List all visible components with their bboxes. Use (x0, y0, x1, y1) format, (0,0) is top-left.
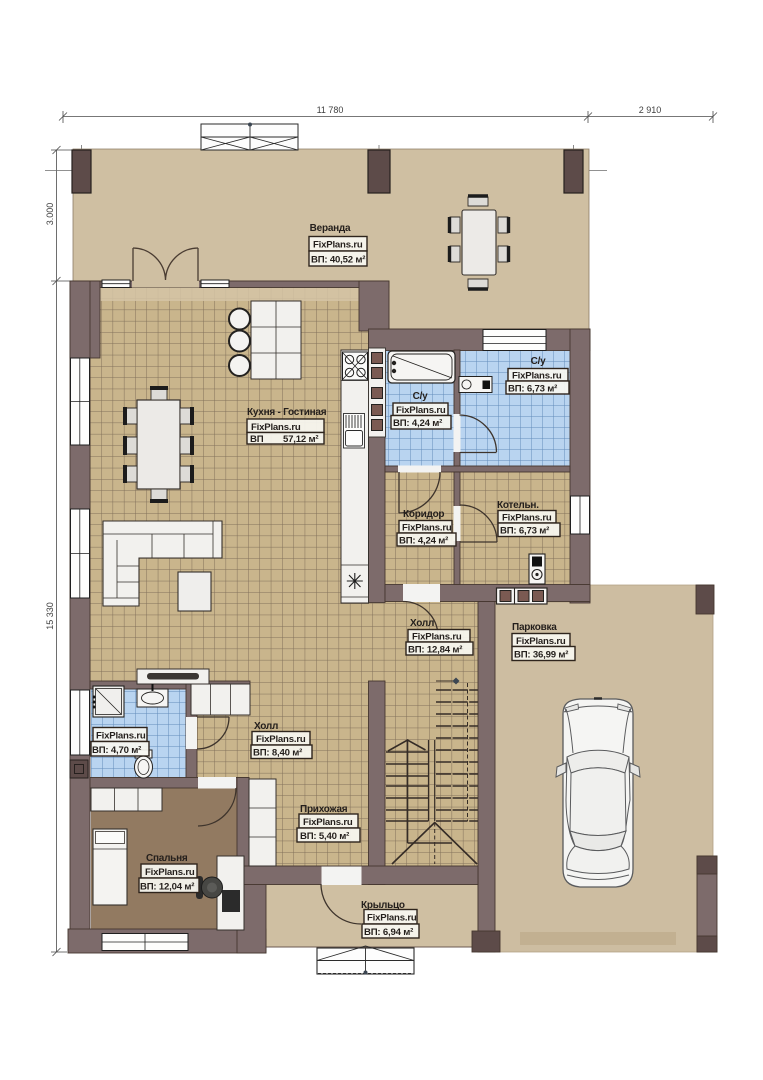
svg-text:FixPlans.ru: FixPlans.ru (96, 731, 146, 742)
svg-text:ВП: 6,94 м²: ВП: 6,94 м² (364, 927, 413, 938)
svg-text:ВП: 40,52 м²: ВП: 40,52 м² (311, 255, 365, 266)
svg-text:FixPlans.ru: FixPlans.ru (303, 817, 353, 828)
svg-text:11 780: 11 780 (317, 105, 344, 115)
svg-text:Холл: Холл (254, 721, 278, 732)
svg-text:С/у: С/у (413, 391, 429, 402)
svg-text:FixPlans.ru: FixPlans.ru (412, 632, 462, 643)
svg-text:С/у: С/у (531, 356, 547, 367)
svg-text:ВП: 4,24 м²: ВП: 4,24 м² (393, 418, 442, 429)
svg-text:ВП: 4,24 м²: ВП: 4,24 м² (399, 536, 448, 547)
svg-text:ВП: 12,84 м²: ВП: 12,84 м² (408, 645, 462, 656)
svg-text:Парковка: Парковка (512, 622, 557, 633)
svg-text:FixPlans.ru: FixPlans.ru (516, 636, 566, 647)
svg-text:ВП: 36,99 м²: ВП: 36,99 м² (514, 650, 568, 661)
svg-text:Кухня - Гостиная: Кухня - Гостиная (247, 407, 327, 418)
svg-text:ВП: ВП (250, 434, 264, 445)
svg-text:ВП: 6,73 м²: ВП: 6,73 м² (508, 384, 557, 395)
svg-text:57,12 м²: 57,12 м² (283, 434, 318, 445)
svg-text:ВП: 4,70 м²: ВП: 4,70 м² (92, 745, 141, 756)
svg-text:FixPlans.ru: FixPlans.ru (502, 513, 552, 524)
svg-text:Спальня: Спальня (146, 853, 188, 864)
svg-text:FixPlans.ru: FixPlans.ru (396, 405, 446, 416)
svg-text:Веранда: Веранда (310, 223, 351, 234)
svg-text:3.000: 3.000 (45, 203, 55, 226)
svg-text:FixPlans.ru: FixPlans.ru (367, 913, 417, 924)
svg-text:Коридор: Коридор (403, 509, 444, 520)
svg-text:ВП: 12,04 м²: ВП: 12,04 м² (140, 882, 194, 893)
svg-text:Котельн.: Котельн. (497, 500, 539, 511)
svg-text:2 910: 2 910 (639, 105, 662, 115)
svg-text:FixPlans.ru: FixPlans.ru (313, 240, 363, 251)
svg-text:FixPlans.ru: FixPlans.ru (256, 734, 306, 745)
svg-text:FixPlans.ru: FixPlans.ru (512, 371, 562, 382)
svg-text:Холл: Холл (410, 618, 434, 629)
svg-text:ВП: 5,40 м²: ВП: 5,40 м² (300, 831, 349, 842)
svg-text:ВП: 6,73 м²: ВП: 6,73 м² (500, 526, 549, 537)
svg-text:ВП: 8,40 м²: ВП: 8,40 м² (253, 748, 302, 759)
svg-text:15 330: 15 330 (45, 602, 55, 630)
svg-text:FixPlans.ru: FixPlans.ru (145, 867, 195, 878)
svg-text:FixPlans.ru: FixPlans.ru (251, 422, 301, 433)
svg-text:FixPlans.ru: FixPlans.ru (402, 523, 452, 534)
